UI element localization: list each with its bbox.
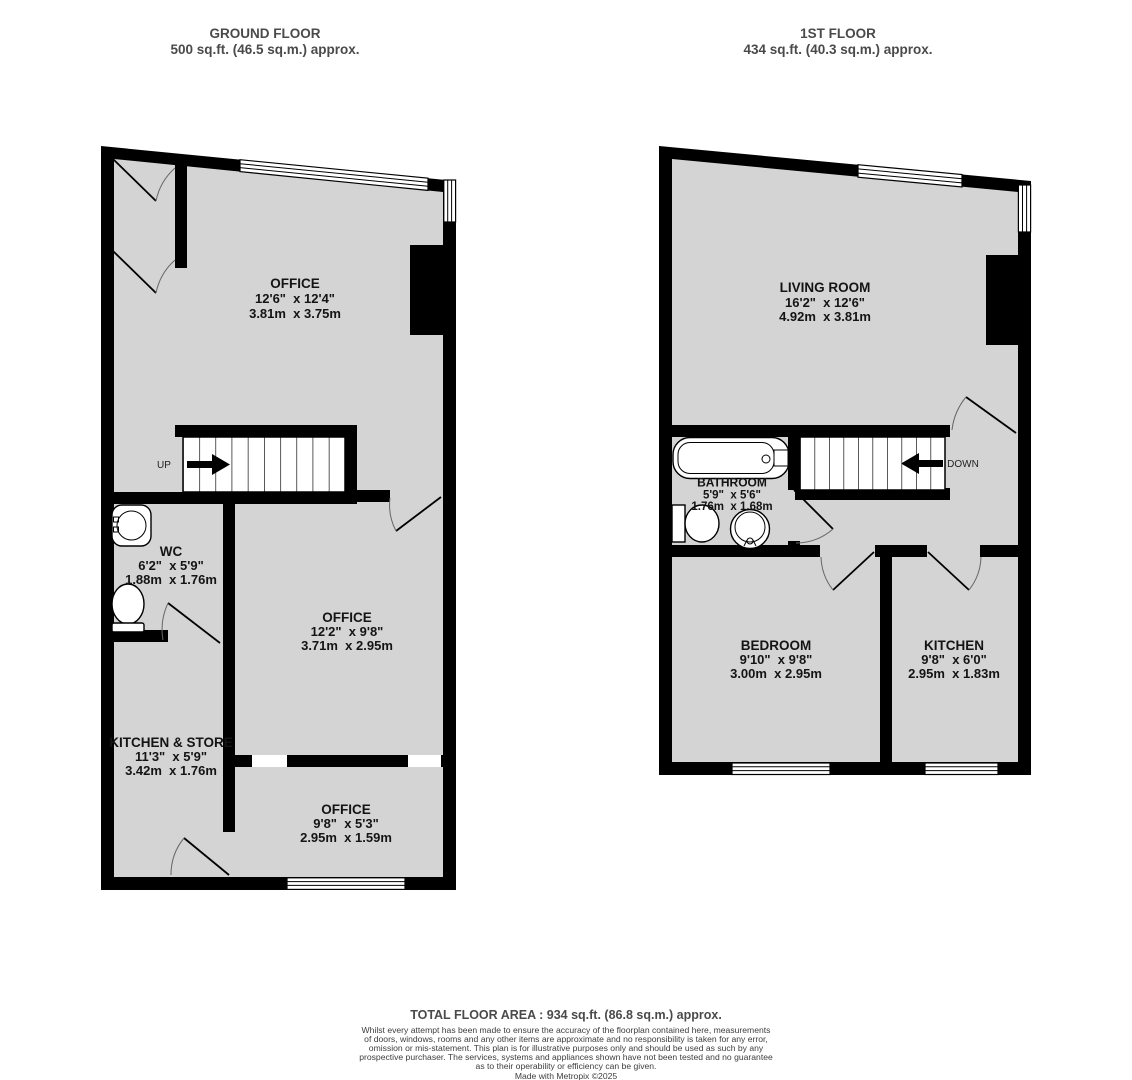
room-dimensions-metric: 2.95m x 1.83m — [908, 666, 1000, 681]
gf-right-window — [444, 180, 456, 222]
room-dimensions-metric: 1.88m x 1.76m — [125, 572, 217, 587]
room-name: OFFICE — [322, 610, 372, 625]
room-dimensions-imperial: 16'2" x 12'6" — [785, 295, 865, 310]
gf-stairs-right-wall — [345, 432, 357, 502]
ff-bedroom-window — [732, 763, 830, 775]
footer: TOTAL FLOOR AREA : 934 sq.ft. (86.8 sq.m… — [0, 1008, 1132, 1080]
room-name: BATHROOM — [697, 476, 767, 490]
gf-rear-window — [287, 878, 405, 890]
room-dimensions-metric: 3.00m x 2.95m — [730, 666, 822, 681]
gf-opening-right — [408, 755, 441, 767]
gf-stairs-bottom-wall — [114, 492, 357, 504]
floorplan-page: GROUND FLOOR 500 sq.ft. (46.5 sq.m.) app… — [0, 0, 1132, 1080]
gf-opening-left — [252, 755, 287, 767]
room-dimensions-metric: 3.42m x 1.76m — [125, 763, 217, 778]
gf-toilet — [112, 584, 144, 632]
ff-living-room-label: LIVING ROOM 16'2" x 12'6" 4.92m x 3.81m — [779, 280, 871, 324]
gf-office-door-wall — [357, 490, 390, 502]
room-dimensions-metric: 2.95m x 1.59m — [300, 830, 392, 845]
gf-central-divider-wall — [223, 504, 235, 832]
ff-kitchen-top-wall — [980, 545, 1018, 557]
room-dimensions-metric: 3.71m x 2.95m — [301, 638, 393, 653]
room-dimensions-imperial: 9'10" x 9'8" — [740, 652, 813, 667]
ff-basin — [731, 510, 770, 549]
room-dimensions-imperial: 12'6" x 12'4" — [255, 291, 335, 306]
ff-bedroom-kitchen-wall — [880, 557, 892, 762]
ground-floor-plan: UP — [101, 146, 456, 890]
room-dimensions-imperial: 9'8" x 5'3" — [313, 816, 379, 831]
room-name: LIVING ROOM — [780, 280, 871, 295]
floorplan-drawing: UP — [0, 0, 1132, 1080]
room-dimensions-imperial: 9'8" x 6'0" — [921, 652, 987, 667]
gf-stairs: UP — [157, 437, 345, 492]
first-floor-plan: DOWN — [659, 146, 1031, 775]
ff-bedroom-label: BEDROOM 9'10" x 9'8" 3.00m x 2.95m — [730, 638, 822, 681]
ff-right-window — [1018, 185, 1030, 232]
ff-bathroom-label: BATHROOM 5'9" x 5'6" 1.76m x 1.68m — [691, 476, 772, 514]
ff-kitchen-window — [925, 763, 998, 775]
ff-landing-wall-middle — [875, 545, 927, 557]
room-name: BEDROOM — [741, 638, 812, 653]
room-dimensions-imperial: 11'3" x 5'9" — [135, 749, 207, 764]
room-dimensions-imperial: 6'2" x 5'9" — [138, 558, 204, 573]
gf-office-bottom-wall — [175, 425, 357, 437]
ff-living-bottom-wall — [672, 425, 950, 437]
room-name: OFFICE — [270, 276, 320, 291]
ff-bathroom-right-wall — [788, 437, 800, 490]
room-name: WC — [160, 544, 183, 559]
ff-stairs-direction-label: DOWN — [947, 459, 979, 470]
gf-wc-basin — [112, 505, 151, 546]
room-name: KITCHEN & STORE — [109, 735, 233, 750]
disclaimer-line: as to their operability or efficiency ca… — [0, 1062, 1132, 1071]
gf-chimney-breast — [410, 245, 453, 335]
gf-hall-wall — [175, 156, 187, 268]
metropix-credit: Made with Metropix ©2025 — [0, 1071, 1132, 1080]
room-dimensions-metric: 1.76m x 1.68m — [691, 501, 772, 513]
room-dimensions-imperial: 5'9" x 5'6" — [703, 490, 761, 502]
room-name: KITCHEN — [924, 638, 984, 653]
gf-stairs-direction-label: UP — [157, 460, 171, 471]
ff-bathtub — [673, 438, 789, 479]
room-dimensions-metric: 4.92m x 3.81m — [779, 309, 871, 324]
room-dimensions-imperial: 12'2" x 9'8" — [311, 624, 384, 639]
room-dimensions-metric: 3.81m x 3.75m — [249, 306, 341, 321]
ff-chimney-breast — [986, 255, 1022, 345]
total-floor-area: TOTAL FLOOR AREA : 934 sq.ft. (86.8 sq.m… — [0, 1008, 1132, 1022]
room-name: OFFICE — [321, 802, 371, 817]
